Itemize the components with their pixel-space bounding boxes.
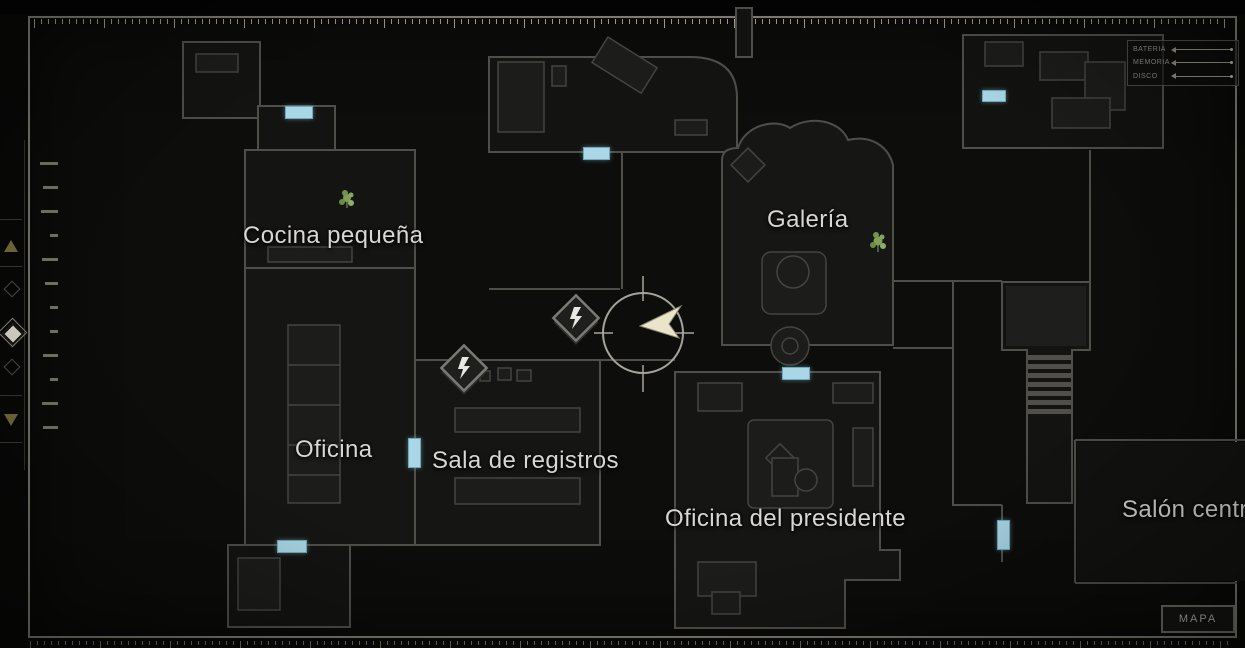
floor-down-icon[interactable]	[4, 414, 18, 426]
legend-label: DISCO	[1133, 73, 1171, 80]
mapa-badge: MAPA	[1161, 605, 1235, 633]
player-arrow-icon	[640, 306, 681, 338]
legend-row-memoria: MEMORIA	[1133, 58, 1233, 68]
legend-line	[1176, 62, 1230, 63]
door-marker	[982, 90, 1006, 102]
legend-line	[1176, 76, 1230, 77]
status-legend: BATERÍA MEMORIA DISCO	[1127, 40, 1239, 86]
room-label-cocina: Cocina pequeña	[243, 222, 423, 250]
door-marker	[285, 106, 313, 119]
room-label-sala-registros: Sala de registros	[432, 447, 619, 475]
selector-divider	[0, 442, 22, 443]
legend-dot	[1230, 75, 1233, 78]
door-marker	[277, 540, 307, 553]
door-marker	[583, 147, 610, 160]
legend-row-disco: DISCO	[1133, 71, 1233, 81]
legend-dot	[1230, 48, 1233, 51]
room-label-oficina: Oficina	[295, 436, 373, 464]
room-label-salon-central: Salón central	[1122, 496, 1245, 524]
legend-label: BATERÍA	[1133, 46, 1171, 53]
ruler-left	[40, 162, 58, 429]
floor-up-icon[interactable]	[4, 240, 18, 252]
door-marker	[997, 520, 1010, 550]
door-marker	[782, 367, 810, 380]
floor-plan-svg	[0, 0, 1245, 648]
map-screen: Cocina pequeña Galería Oficina Sala de r…	[0, 0, 1245, 648]
legend-label: MEMORIA	[1133, 59, 1171, 66]
selector-divider	[0, 395, 22, 396]
legend-dot	[1230, 61, 1233, 64]
selector-divider-vertical	[24, 140, 25, 470]
breaker-icon	[553, 295, 598, 343]
legend-line	[1176, 49, 1230, 50]
selector-divider	[0, 266, 22, 267]
door-marker	[408, 438, 421, 468]
room-label-oficina-presidente: Oficina del presidente	[665, 505, 906, 533]
legend-row-bateria: BATERÍA	[1133, 45, 1233, 55]
selector-divider	[0, 219, 22, 220]
room-label-galeria: Galería	[767, 206, 849, 234]
